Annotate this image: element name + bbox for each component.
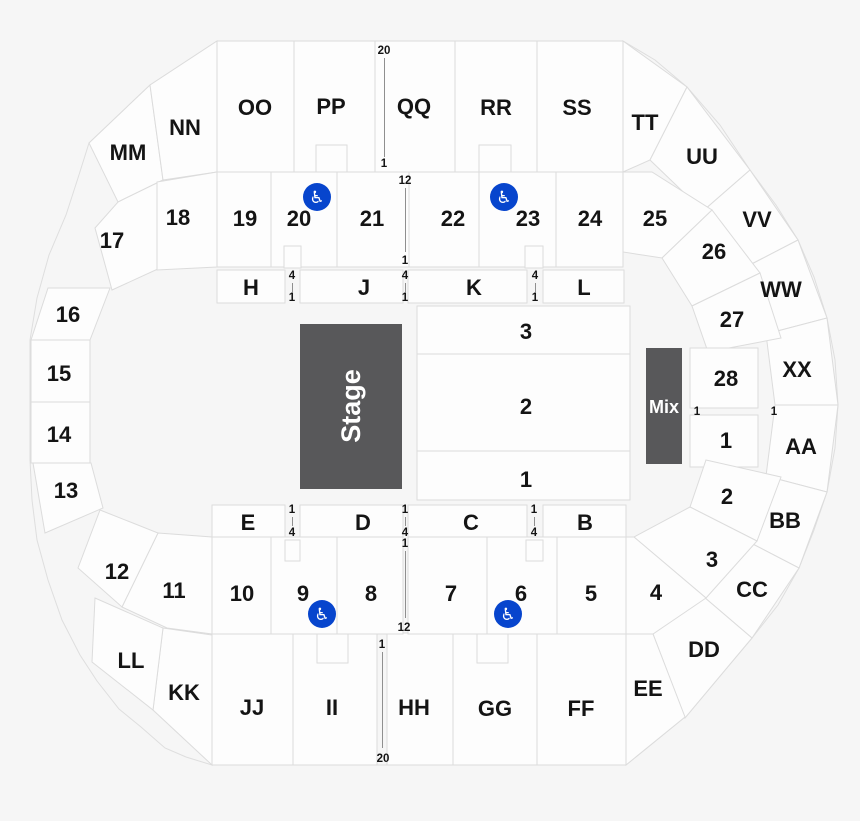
label-VV: VV: [742, 207, 772, 232]
wheelchair-glyph: ♿: [314, 605, 329, 625]
label-sec4: 4: [650, 580, 663, 605]
wheelchair-glyph: ♿: [500, 605, 515, 625]
aisle-8-7-top: 1: [402, 538, 409, 550]
seating-map: Stage Mix 20 1 12 1 4 1 4 1 4 1 1 4 1 4 …: [0, 0, 860, 821]
label-LL: LL: [118, 648, 145, 673]
tunnel-notch-rr: [479, 145, 511, 172]
label-WW: WW: [760, 277, 802, 302]
aisle-21-22-top: 12: [399, 175, 412, 187]
label-27: 27: [720, 307, 744, 332]
tunnel-notch-ii: [317, 634, 348, 663]
label-D: D: [355, 510, 371, 535]
label-26: 26: [702, 239, 726, 264]
label-E: E: [241, 510, 256, 535]
label-sec9: 9: [297, 581, 309, 606]
aisle-8-7-bottom: 12: [398, 622, 411, 634]
label-sec14: 14: [47, 422, 72, 447]
label-23: 23: [516, 206, 540, 231]
mix-label: Mix: [649, 397, 679, 417]
section-J[interactable]: [300, 270, 403, 303]
label-sec3: 3: [706, 547, 718, 572]
tunnel-notch-gg: [477, 634, 508, 663]
label-AA: AA: [785, 434, 817, 459]
label-HH: HH: [398, 695, 430, 720]
label-DD: DD: [688, 637, 720, 662]
marker-cb-top: 1: [531, 504, 538, 516]
label-sec6: 6: [515, 581, 527, 606]
label-25: 25: [643, 206, 667, 231]
label-17: 17: [100, 228, 124, 253]
label-floor3: 3: [520, 319, 532, 344]
label-sec11: 11: [162, 578, 185, 603]
wheelchair-glyph: ♿: [496, 188, 511, 208]
label-CC: CC: [736, 577, 768, 602]
label-18: 18: [166, 205, 190, 230]
marker-hj-top: 4: [289, 270, 296, 282]
label-MM: MM: [110, 140, 147, 165]
aisle-21-22-bottom: 1: [402, 255, 409, 267]
aisle-ii-hh-bottom: 20: [377, 753, 390, 765]
label-sec13: 13: [54, 478, 78, 503]
label-28: 28: [714, 366, 738, 391]
label-sec5: 5: [585, 581, 597, 606]
label-QQ: QQ: [397, 94, 431, 119]
label-L: L: [577, 275, 590, 300]
label-JJ: JJ: [240, 695, 264, 720]
label-sec10: 10: [230, 581, 254, 606]
marker-jk-bottom: 1: [402, 292, 409, 304]
label-21: 21: [360, 206, 384, 231]
wheelchair-glyph: ♿: [309, 188, 324, 208]
tunnel-notch-pp: [316, 145, 347, 172]
marker-kl-top: 4: [532, 270, 539, 282]
label-20: 20: [287, 206, 311, 231]
stage-label: Stage: [336, 369, 366, 443]
marker-kl-bottom: 1: [532, 292, 539, 304]
aisle-qq-bottom: 1: [381, 158, 388, 170]
row1-marker-right: 1: [771, 406, 778, 418]
label-UU: UU: [686, 144, 718, 169]
label-SS: SS: [562, 95, 591, 120]
label-J: J: [358, 275, 370, 300]
label-24: 24: [578, 206, 603, 231]
aisle-ii-hh-top: 1: [379, 639, 386, 651]
tunnel-notch-ed: [285, 540, 300, 561]
tunnel-notch-kl: [525, 246, 543, 268]
label-KK: KK: [168, 680, 200, 705]
marker-jk-top: 4: [402, 270, 409, 282]
marker-ed-bottom: 4: [289, 527, 296, 539]
label-PP: PP: [316, 94, 345, 119]
row1-marker-left: 1: [694, 406, 701, 418]
label-sec16: 16: [56, 302, 80, 327]
label-sec12: 12: [105, 559, 129, 584]
label-floor2: 2: [520, 394, 532, 419]
label-GG: GG: [478, 696, 512, 721]
aisle-qq-top: 20: [378, 45, 391, 57]
label-K: K: [466, 275, 482, 300]
label-C: C: [463, 510, 479, 535]
tunnel-notch-cb: [526, 540, 543, 561]
label-B: B: [577, 510, 593, 535]
label-floor1: 1: [520, 467, 532, 492]
marker-hj-bottom: 1: [289, 292, 296, 304]
label-II: II: [326, 695, 338, 720]
label-sec2: 2: [721, 484, 733, 509]
label-TT: TT: [632, 110, 659, 135]
label-sec8: 8: [365, 581, 377, 606]
label-sec7: 7: [445, 581, 457, 606]
label-22: 22: [441, 206, 465, 231]
label-H: H: [243, 275, 259, 300]
venue-map-canvas: Stage Mix 20 1 12 1 4 1 4 1 4 1 1 4 1 4 …: [0, 0, 860, 821]
marker-dc-top: 1: [402, 504, 409, 516]
marker-ed-top: 1: [289, 504, 296, 516]
label-RR: RR: [480, 95, 512, 120]
label-NN: NN: [169, 115, 201, 140]
label-FF: FF: [568, 696, 595, 721]
label-OO: OO: [238, 95, 272, 120]
label-19: 19: [233, 206, 257, 231]
label-BB: BB: [769, 508, 801, 533]
tunnel-notch-hj: [284, 246, 301, 268]
section-D[interactable]: [300, 505, 403, 537]
marker-cb-bottom: 4: [531, 527, 538, 539]
label-sec15: 15: [47, 361, 71, 386]
label-sec1: 1: [720, 428, 732, 453]
label-XX: XX: [782, 357, 812, 382]
label-EE: EE: [633, 676, 662, 701]
